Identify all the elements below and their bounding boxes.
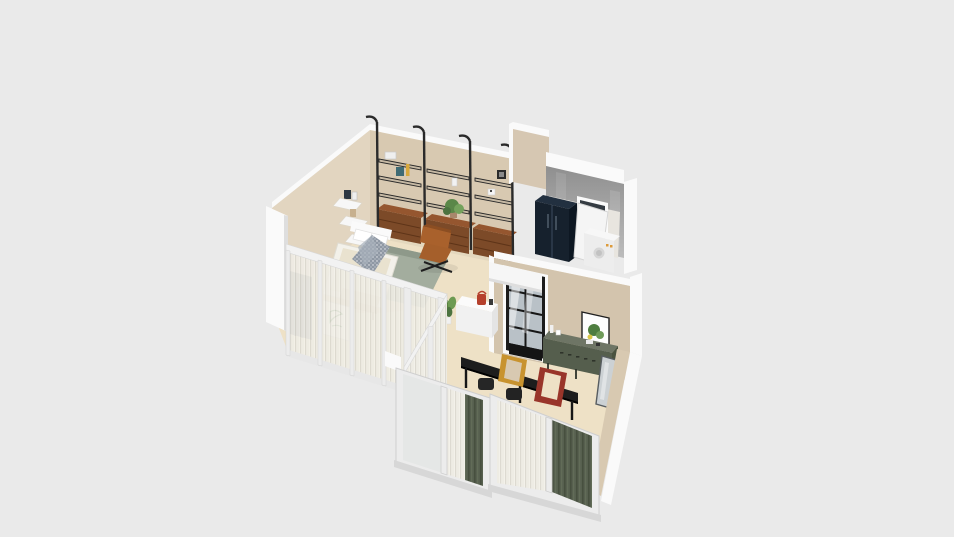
counter-dark-item: [489, 299, 493, 305]
viewport-3d[interactable]: [0, 0, 954, 537]
refrigerator: [535, 195, 577, 262]
unitA-glass: [403, 374, 443, 473]
utility-east-wall-top: [624, 178, 637, 274]
red-leaning-frame: [534, 367, 567, 407]
utility-room: [535, 152, 637, 274]
unitA-center-stile: [441, 386, 447, 475]
unitA-green-curtain: [465, 394, 483, 486]
separator-wall: [509, 122, 549, 190]
unitB-center-stile: [546, 417, 552, 493]
east-wall-top-upper: [630, 273, 642, 356]
floorplan-render: [0, 0, 954, 537]
